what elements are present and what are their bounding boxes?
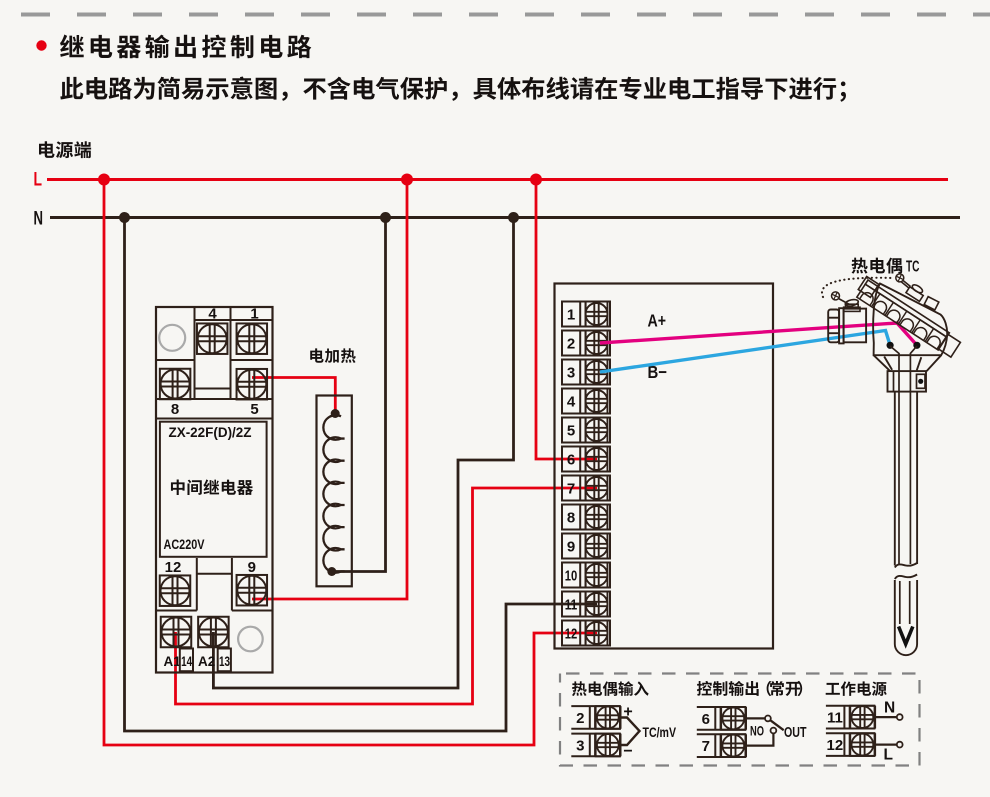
- svg-text:L: L: [34, 170, 43, 191]
- svg-text:OUT: OUT: [784, 725, 807, 741]
- svg-text:10: 10: [565, 568, 578, 585]
- svg-text:A1: A1: [164, 654, 182, 669]
- svg-text:L: L: [884, 747, 893, 764]
- svg-text:N: N: [884, 700, 895, 717]
- svg-text:12: 12: [565, 626, 578, 643]
- svg-text:4: 4: [567, 394, 576, 411]
- svg-text:2: 2: [576, 710, 584, 727]
- svg-text:3: 3: [567, 365, 575, 382]
- svg-text:4: 4: [208, 306, 217, 323]
- svg-text:N: N: [34, 209, 44, 230]
- svg-text:6: 6: [567, 452, 575, 469]
- svg-text:8: 8: [567, 510, 575, 527]
- svg-text:13: 13: [219, 654, 230, 669]
- svg-text:11: 11: [565, 597, 578, 614]
- svg-text:NO: NO: [750, 723, 764, 739]
- svg-text:3: 3: [576, 737, 584, 754]
- svg-text:1: 1: [567, 307, 575, 324]
- svg-text:11: 11: [827, 710, 843, 727]
- svg-text:1: 1: [250, 306, 258, 323]
- svg-text:7: 7: [567, 481, 575, 498]
- svg-text:TC: TC: [906, 259, 920, 276]
- svg-text:A+: A+: [648, 311, 667, 331]
- svg-text:ZX-22F(D)/2Z: ZX-22F(D)/2Z: [169, 425, 252, 440]
- svg-text:A2: A2: [198, 654, 215, 669]
- svg-text:5: 5: [567, 423, 575, 440]
- svg-text:6: 6: [702, 711, 710, 728]
- svg-text:12: 12: [165, 559, 182, 576]
- svg-text:8: 8: [171, 401, 179, 418]
- svg-text:5: 5: [250, 401, 258, 418]
- svg-text:TC/mV: TC/mV: [643, 725, 677, 740]
- svg-text:7: 7: [702, 738, 710, 755]
- svg-text:9: 9: [248, 559, 256, 576]
- svg-text:AC220V: AC220V: [164, 537, 205, 552]
- svg-text:2: 2: [567, 336, 575, 353]
- svg-text:12: 12: [827, 737, 844, 754]
- svg-text:14: 14: [181, 654, 192, 669]
- svg-text:9: 9: [567, 539, 575, 556]
